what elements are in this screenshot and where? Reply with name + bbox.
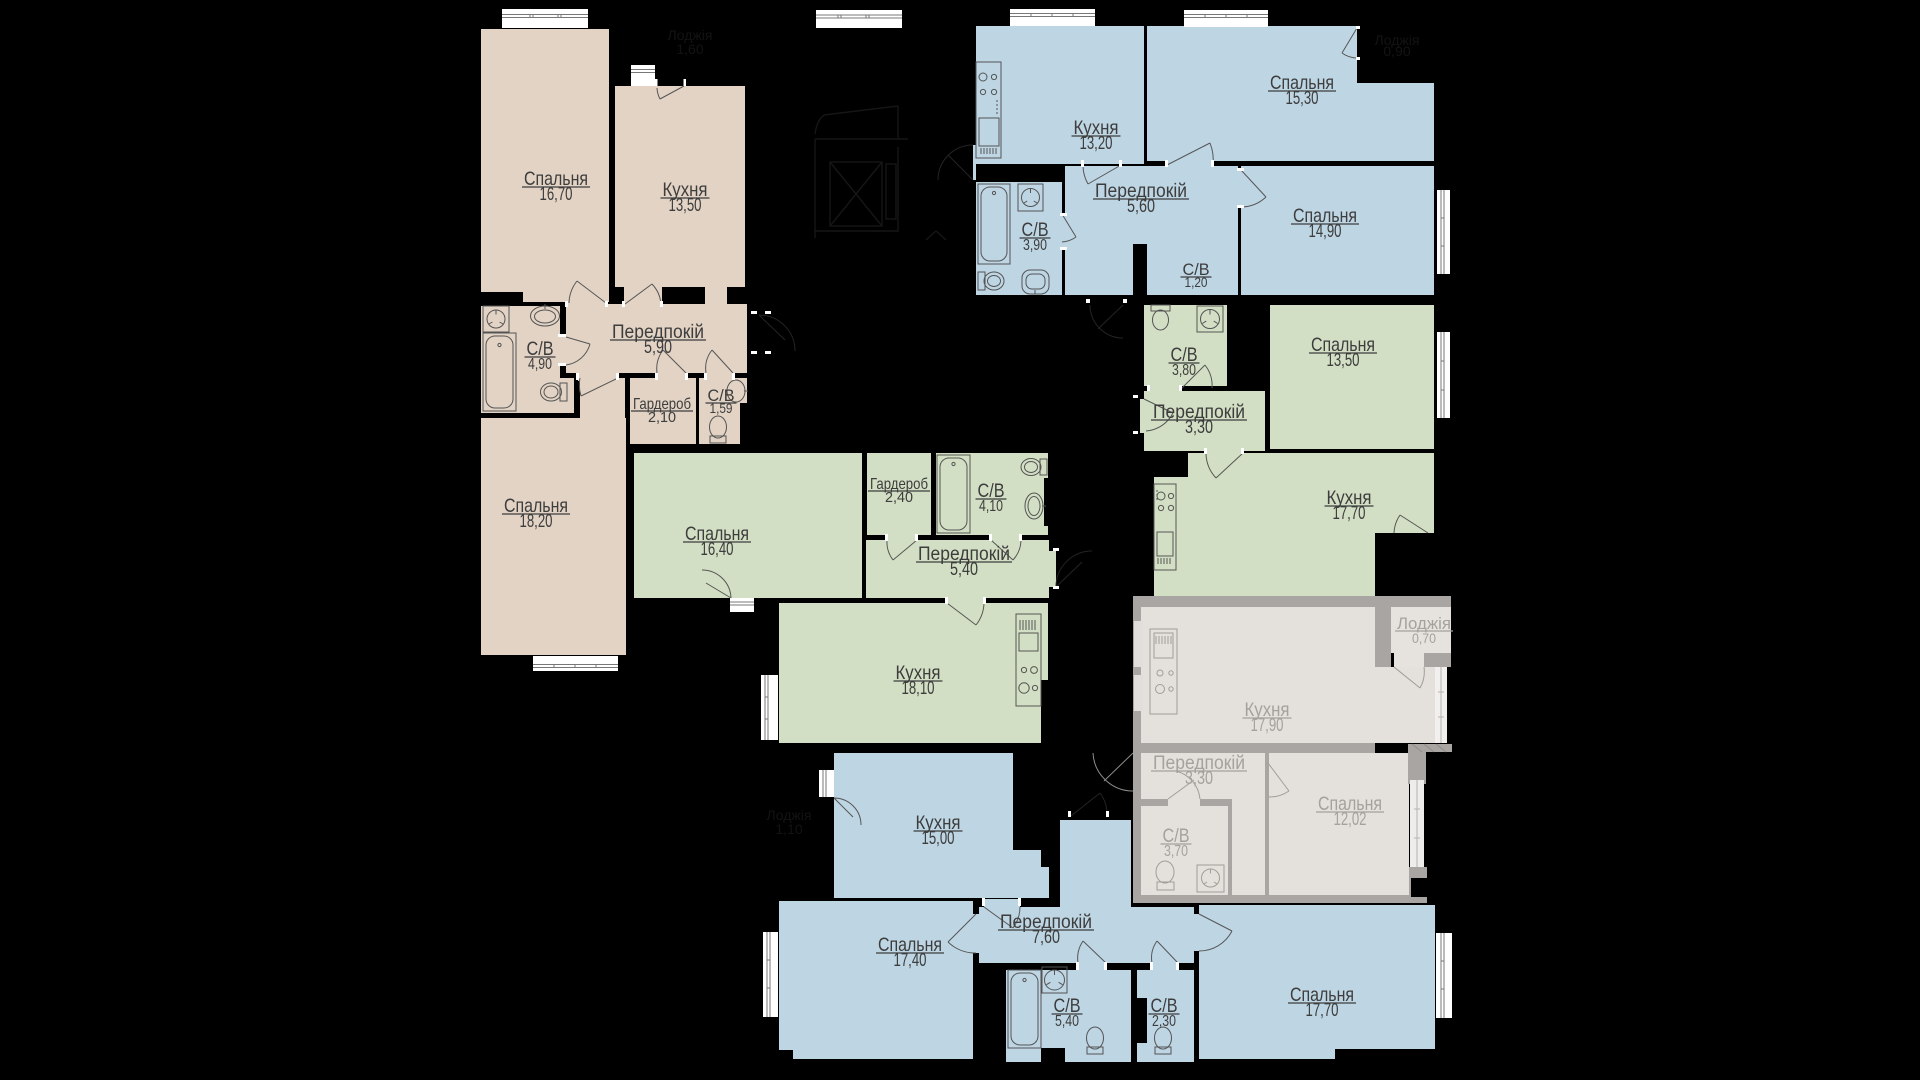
svg-text:2,30: 2,30 [1152,1013,1176,1030]
svg-text:0,90: 0,90 [1383,43,1410,59]
svg-text:18,10: 18,10 [902,678,935,698]
svg-text:3,70: 3,70 [1164,843,1188,860]
svg-text:13,50: 13,50 [669,195,702,215]
svg-text:5,40: 5,40 [1055,1013,1079,1030]
svg-text:3,30: 3,30 [1185,417,1213,437]
svg-text:15,00: 15,00 [922,828,955,848]
svg-text:5,60: 5,60 [1127,196,1155,216]
svg-text:18,20: 18,20 [520,511,553,531]
svg-text:3,30: 3,30 [1185,768,1213,788]
svg-text:17,70: 17,70 [1333,503,1366,523]
svg-text:5,40: 5,40 [950,559,978,579]
svg-text:0,70: 0,70 [1412,630,1436,646]
svg-text:7,60: 7,60 [1032,927,1060,947]
svg-text:5,90: 5,90 [644,337,672,357]
svg-text:1,59: 1,59 [710,400,733,416]
svg-text:3,90: 3,90 [1023,237,1047,254]
svg-text:1,20: 1,20 [1185,274,1208,290]
svg-text:17,40: 17,40 [894,950,927,970]
svg-text:4,90: 4,90 [528,356,552,373]
svg-text:17,90: 17,90 [1251,715,1284,735]
svg-text:1,10: 1,10 [775,821,802,837]
svg-text:16,40: 16,40 [701,539,734,559]
svg-text:15,30: 15,30 [1286,88,1319,108]
svg-text:2,10: 2,10 [648,410,676,426]
svg-text:13,50: 13,50 [1327,350,1360,370]
svg-text:14,90: 14,90 [1309,221,1342,241]
svg-text:12,02: 12,02 [1334,809,1367,829]
svg-text:13,20: 13,20 [1080,133,1113,153]
svg-text:1,60: 1,60 [676,41,703,57]
svg-text:2,40: 2,40 [885,490,913,506]
svg-text:4,10: 4,10 [979,498,1003,515]
svg-text:16,70: 16,70 [540,184,573,204]
svg-text:3,80: 3,80 [1172,362,1196,379]
svg-text:17,70: 17,70 [1306,1000,1339,1020]
